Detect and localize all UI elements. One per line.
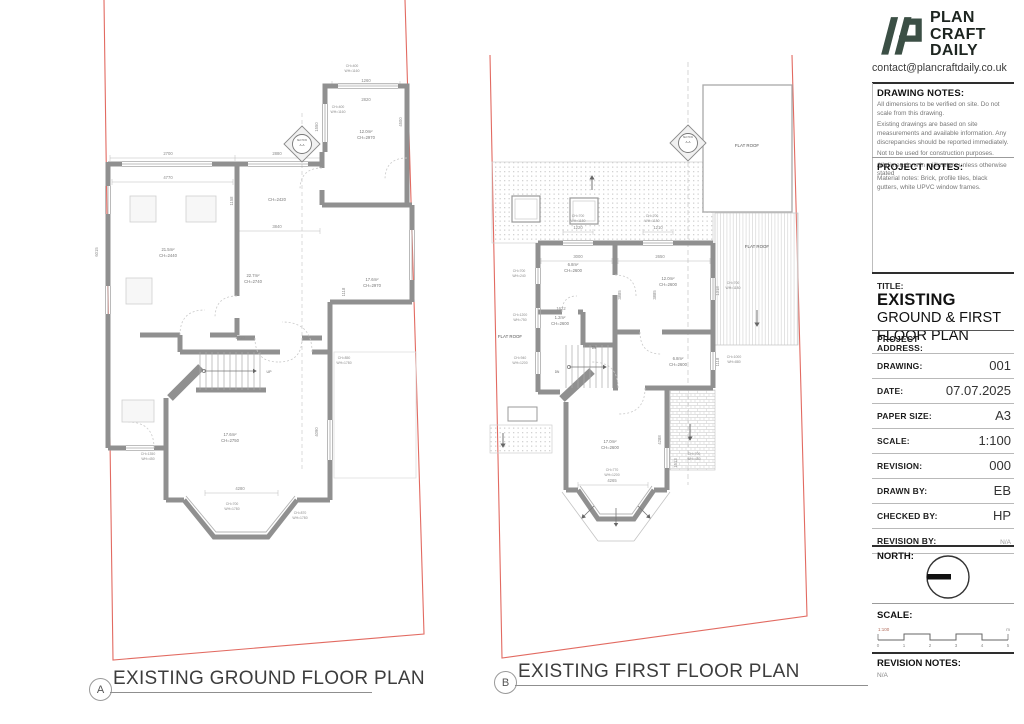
room-label: 6.8m² bbox=[568, 262, 579, 267]
plan-a-caption: EXISTING GROUND FLOOR PLAN bbox=[113, 668, 425, 690]
project-notes: Material notes: Brick, profile tiles, bl… bbox=[877, 175, 1010, 195]
field-value: A3 bbox=[995, 408, 1011, 423]
plan-annotation: CH=700 bbox=[513, 269, 526, 273]
stairs-a bbox=[200, 352, 260, 390]
chamfer-wall-b bbox=[562, 371, 592, 399]
scale-tick: 0 bbox=[877, 643, 880, 648]
room-label: 22.7m² bbox=[246, 273, 260, 278]
plan-b-caption-underline bbox=[515, 685, 868, 686]
plan-annotation: CH=2970 bbox=[357, 135, 375, 140]
scale-tick: 1 bbox=[903, 643, 906, 648]
plan-annotation: CH=1000 bbox=[727, 355, 742, 359]
scale-tick: 3 bbox=[955, 643, 958, 648]
flat-roof-label: FLAT ROOF bbox=[745, 244, 770, 249]
plan-annotation: 6015 bbox=[94, 247, 99, 257]
note-line: All dimensions to be verified on site. D… bbox=[877, 101, 1010, 118]
field-value: HP bbox=[993, 508, 1011, 523]
scale-bar: 1:100 m 012345 bbox=[876, 624, 1012, 650]
brand-name: PLAN CRAFT DAILY bbox=[930, 10, 986, 61]
scale-tick: 2 bbox=[929, 643, 932, 648]
plan-annotation: CH=2740 bbox=[244, 279, 262, 284]
dimension-lines bbox=[110, 81, 400, 496]
plan-annotation: WH=1180 bbox=[645, 219, 660, 223]
drawing-sheet: 2700288047701260CH=400WH=1160CH=400WH=11… bbox=[0, 0, 870, 724]
plan-annotation: 2880 bbox=[272, 151, 282, 156]
room-label: 1.2m² bbox=[555, 315, 566, 320]
plan-annotation: CH=700 bbox=[572, 214, 585, 218]
field-row: PAPER SIZE:A3 bbox=[872, 404, 1014, 429]
plan-b-tag: B bbox=[494, 671, 517, 694]
plan-annotation: CH=700 bbox=[646, 214, 659, 218]
field-label: PROJECT ADDRESS: bbox=[877, 335, 937, 354]
scale-label: SCALE: bbox=[877, 610, 912, 621]
field-value: 000 bbox=[989, 458, 1011, 473]
plan-annotation: DN bbox=[592, 346, 597, 350]
scale-tick: 4 bbox=[981, 643, 984, 648]
flat-roof-left bbox=[490, 425, 552, 453]
plan-annotation: WH=1200 bbox=[512, 361, 527, 365]
project-notes-heading: PROJECT NOTES: bbox=[877, 162, 963, 173]
field-value: 001 bbox=[989, 358, 1011, 373]
svg-text:m: m bbox=[1006, 627, 1010, 632]
plan-annotation: 1318 bbox=[715, 286, 720, 296]
notes-left-border bbox=[872, 83, 873, 273]
patio-outline bbox=[334, 352, 416, 478]
plan-annotation: WH=1160 bbox=[345, 69, 360, 73]
plan-annotation: 3840 bbox=[272, 224, 282, 229]
plan-annotation: DN bbox=[555, 370, 560, 374]
field-value: EB bbox=[994, 483, 1011, 498]
field-label: PAPER SIZE: bbox=[877, 411, 932, 421]
north-arrow bbox=[922, 551, 974, 603]
field-label: DRAWING: bbox=[877, 361, 923, 371]
plan-annotation: 1622 bbox=[556, 306, 566, 311]
room-label: 17.6m² bbox=[223, 432, 237, 437]
field-label: DRAWN BY: bbox=[877, 486, 927, 496]
plan-annotation: SECTION bbox=[297, 140, 308, 142]
plan-annotation: 1260 bbox=[361, 78, 371, 83]
room-label: 17.6m² bbox=[365, 277, 379, 282]
room-label: 6.8m² bbox=[673, 356, 684, 361]
title-label: TITLE: bbox=[877, 281, 903, 291]
field-value: 1:100 bbox=[978, 433, 1011, 448]
plan-annotation: WH=880 bbox=[727, 360, 740, 364]
plan-annotation: 1010 bbox=[235, 335, 245, 340]
plan-annotation: 1118 bbox=[341, 287, 346, 296]
plan-annotation: CH=700 bbox=[688, 452, 701, 456]
walls-a bbox=[108, 86, 412, 500]
plan-b-first-floor: 12201210CH=700WH=1180CH=700WH=1180300026… bbox=[490, 55, 807, 658]
plan-annotation: 1118 bbox=[715, 357, 720, 366]
plan-annotation: CH=2970 bbox=[363, 283, 381, 288]
field-label: SCALE: bbox=[877, 436, 910, 446]
plan-annotation: CH=770 bbox=[606, 468, 619, 472]
plan-annotation: CH=940 bbox=[514, 356, 527, 360]
plan-annotation: 4288 bbox=[657, 435, 662, 445]
plan-annotation: CH=1200 bbox=[513, 313, 528, 317]
room-label: 12.0m² bbox=[359, 129, 373, 134]
room-label: 12.0m² bbox=[661, 276, 675, 281]
plan-annotation: CH=2420 bbox=[268, 197, 286, 202]
plan-annotation: CH=700 bbox=[226, 502, 239, 506]
field-value: 07.07.2025 bbox=[946, 383, 1011, 398]
plan-a-ground-floor: 2700288047701260CH=400WH=1160CH=400WH=11… bbox=[94, 0, 424, 660]
plan-annotation: CH=2750 bbox=[221, 438, 239, 443]
plan-annotation: WH=750 bbox=[513, 318, 526, 322]
plan-annotation: CH=2600 bbox=[669, 362, 687, 367]
plan-annotation: 2820 bbox=[361, 97, 371, 102]
plan-annotation: 1158 bbox=[229, 196, 234, 206]
field-label: DATE: bbox=[877, 386, 903, 396]
contact-email: contact@plancraftdaily.co.uk bbox=[872, 62, 1007, 74]
plan-annotation: A-A bbox=[685, 140, 690, 144]
plan-annotation: 1220 bbox=[573, 225, 583, 230]
plan-annotation: 3885 bbox=[617, 290, 622, 300]
plan-a-caption-underline bbox=[110, 692, 372, 693]
plan-annotation: 3000 bbox=[573, 254, 583, 259]
drawing-notes-heading: DRAWING NOTES: bbox=[877, 88, 964, 99]
plan-annotation: WH=1780 bbox=[292, 516, 307, 520]
field-row: DRAWING:001 bbox=[872, 354, 1014, 379]
plan-annotation: UP bbox=[267, 370, 273, 374]
rooflight-left bbox=[508, 407, 537, 421]
plan-annotation: WH=240 bbox=[512, 274, 525, 278]
note-line: Material notes: Brick, profile tiles, bl… bbox=[877, 175, 1010, 192]
site-boundary-a bbox=[104, 0, 424, 660]
revision-notes-heading: REVISION NOTES: bbox=[877, 658, 961, 669]
room-label: 17.0m² bbox=[603, 439, 617, 444]
plan-annotation: CH=2600 bbox=[564, 268, 582, 273]
field-row: DRAWN BY:EB bbox=[872, 479, 1014, 504]
stairs-b bbox=[566, 345, 608, 388]
note-line: Existing drawings are based on site meas… bbox=[877, 121, 1010, 147]
scale-tick: 5 bbox=[1007, 643, 1010, 648]
field-row: REVISION:000 bbox=[872, 454, 1014, 479]
flat-roof-label: FLAT ROOF bbox=[735, 143, 760, 148]
plan-annotation: 4090 bbox=[314, 427, 319, 437]
plan-annotation: 1513 bbox=[673, 458, 678, 468]
plan-annotation: WH=1780 bbox=[336, 361, 351, 365]
svg-text:1:100: 1:100 bbox=[878, 627, 890, 632]
bay-window-a bbox=[184, 496, 297, 537]
plan-a-tag: A bbox=[89, 678, 112, 701]
flat-roof-top-right bbox=[703, 85, 792, 212]
plan-annotation: WH=1180 bbox=[571, 219, 586, 223]
plan-annotation: 3885 bbox=[652, 290, 657, 300]
plan-annotation: 4500 bbox=[398, 117, 403, 127]
bay-roof-plan bbox=[562, 492, 670, 541]
field-row: PROJECT ADDRESS: bbox=[872, 334, 1014, 354]
plan-annotation: 4770 bbox=[163, 175, 173, 180]
plan-annotation: CH=400 bbox=[346, 64, 359, 68]
flat-roof-label: FLAT ROOF bbox=[498, 334, 523, 339]
plan-annotation: CH=2440 bbox=[159, 253, 177, 258]
room-label: 21.5m² bbox=[161, 247, 175, 252]
field-label: CHECKED BY: bbox=[877, 511, 938, 521]
plan-annotation: 2700 bbox=[163, 151, 173, 156]
plan-annotation: WH=1200 bbox=[604, 473, 619, 477]
plan-annotation: CH=2600 bbox=[601, 445, 619, 450]
plan-annotation: CH=2600 bbox=[551, 321, 569, 326]
title-block-fields: PROJECT ADDRESS:DRAWING:001DATE:07.07.20… bbox=[872, 334, 1014, 554]
plan-annotation: 1210 bbox=[653, 225, 663, 230]
plan-annotation: 4265 bbox=[607, 478, 617, 483]
plan-annotation: WH=450 bbox=[687, 457, 700, 461]
title-block: PLAN CRAFT DAILY contact@plancraftdaily.… bbox=[872, 0, 1014, 724]
plan-annotation: CH=850 bbox=[338, 356, 351, 360]
field-row: CHECKED BY:HP bbox=[872, 504, 1014, 529]
plan-annotation: 1550 bbox=[314, 122, 319, 132]
plan-b-caption: EXISTING FIRST FLOOR PLAN bbox=[518, 661, 800, 683]
plan-annotation: SECTION bbox=[683, 137, 694, 139]
plan-annotation: 2650 bbox=[655, 254, 665, 259]
north-label: NORTH: bbox=[877, 551, 914, 562]
plan-annotation: WH=1780 bbox=[224, 507, 239, 511]
flat-roof-right bbox=[715, 213, 798, 345]
plan-annotation: WH=1180 bbox=[726, 286, 741, 290]
revision-notes-value: N/A bbox=[877, 672, 888, 679]
field-label: REVISION: bbox=[877, 461, 922, 471]
field-row: SCALE:1:100 bbox=[872, 429, 1014, 454]
plan-annotation: A-A bbox=[299, 143, 304, 147]
chamfer-wall-a bbox=[170, 367, 201, 398]
plan-annotation: CH=2600 bbox=[659, 282, 677, 287]
plan-annotation: WH=1160 bbox=[331, 110, 346, 114]
plan-annotation: WH=450 bbox=[141, 457, 154, 461]
plan-annotation: CH=1350 bbox=[141, 452, 156, 456]
field-row: DATE:07.07.2025 bbox=[872, 379, 1014, 404]
plan-annotation: CH=400 bbox=[332, 105, 345, 109]
plan-annotation: CH=870 bbox=[294, 511, 307, 515]
plancraftdaily-logo-icon bbox=[874, 8, 924, 62]
plan-annotation: 4280 bbox=[235, 486, 245, 491]
plan-annotation: CH=700 bbox=[727, 281, 740, 285]
